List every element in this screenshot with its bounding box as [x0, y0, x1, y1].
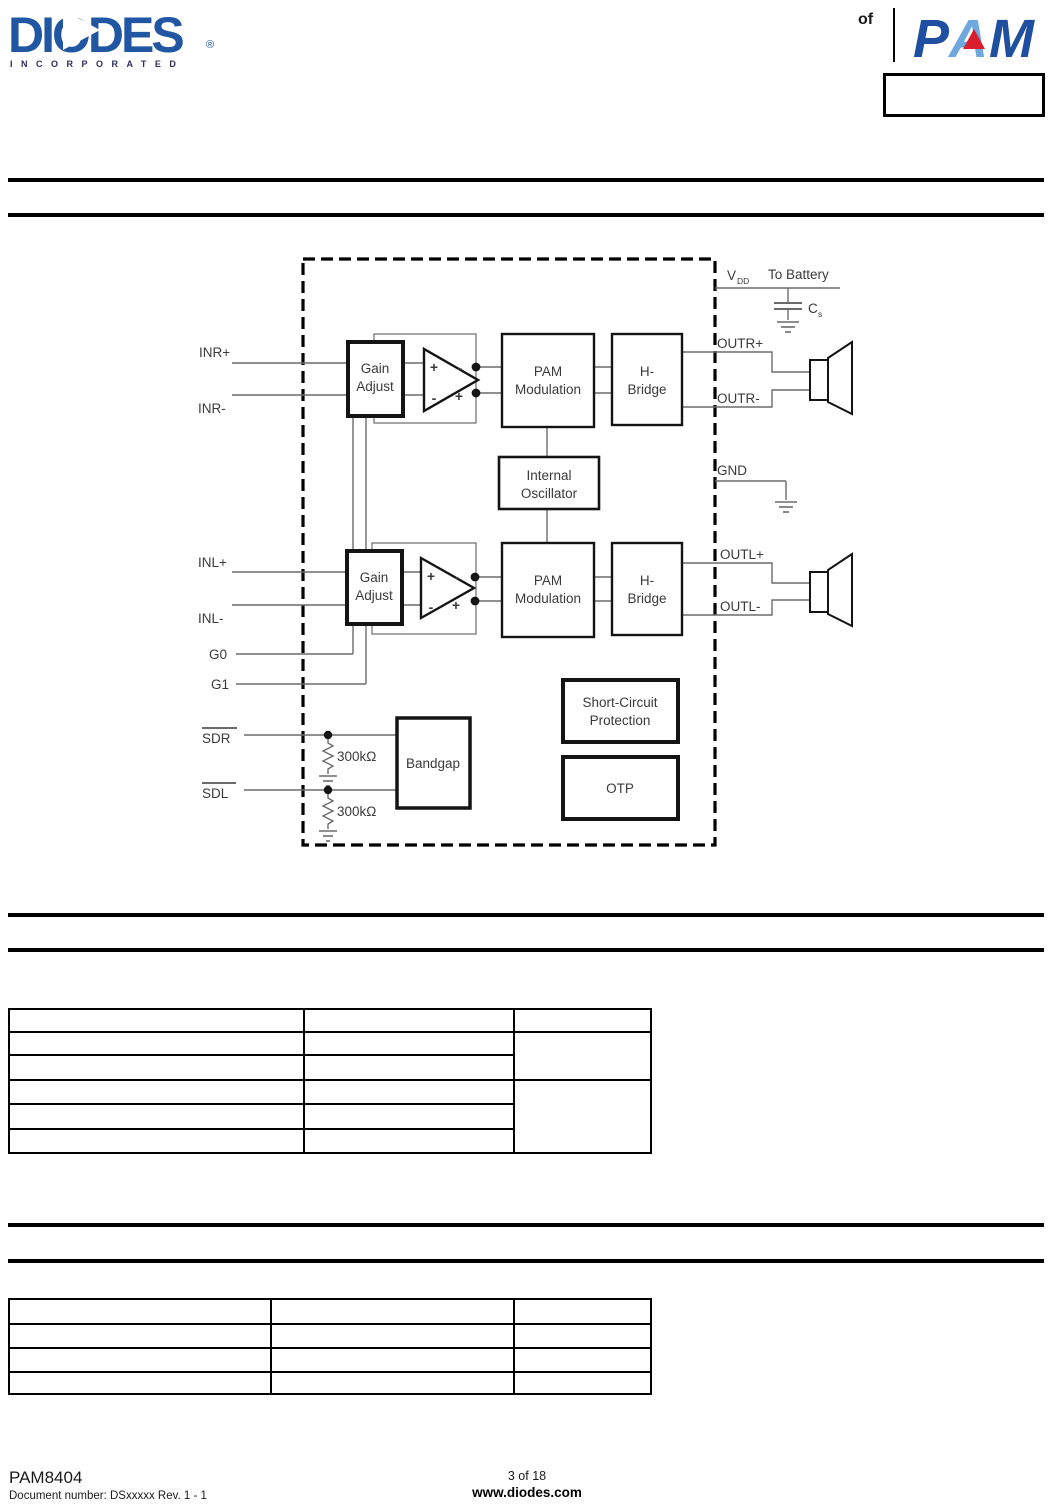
footer-website: www.diodes.com — [377, 1485, 677, 1500]
pin-sdr: SDR — [202, 731, 231, 746]
datasheet-page: DIODES ® INCORPORATED of P A M — [0, 0, 1052, 1505]
header-divider — [893, 8, 895, 62]
pin-inl-plus: INL+ — [198, 555, 227, 570]
pin-vdd: V — [727, 268, 736, 283]
h-bridge-left-block — [612, 543, 682, 635]
pin-g0: G0 — [209, 647, 227, 662]
cs-label: C — [808, 301, 818, 316]
h-bridge-left-line1: H- — [640, 573, 654, 588]
rule-5 — [8, 1223, 1044, 1227]
table-row — [9, 1348, 651, 1372]
table-row — [9, 1324, 651, 1348]
scp-line2: Protection — [590, 713, 651, 728]
diodes-logo-text: DIODES — [8, 7, 183, 63]
short-circuit-protection-block — [563, 680, 678, 742]
rule-4 — [8, 948, 1044, 952]
internal-oscillator-block — [499, 457, 599, 509]
gain-adjust-left-line2: Adjust — [355, 588, 393, 603]
opamp-right-in-plus: + — [430, 359, 438, 375]
opamp-left-out-plus: + — [452, 597, 460, 613]
rule-2 — [8, 213, 1044, 217]
pin-inr-plus: INR+ — [199, 345, 230, 360]
rule-1 — [8, 178, 1044, 182]
pin-outl-plus: OUTL+ — [720, 547, 764, 562]
pin-outl-minus: OUTL- — [720, 599, 761, 614]
table-row — [9, 1080, 651, 1104]
pam-modulation-right-block — [502, 334, 594, 427]
footer-page-indicator: 3 of 18 — [377, 1469, 677, 1483]
table1-merged-cell-b — [514, 1080, 651, 1153]
resistor-sdl — [323, 790, 333, 829]
rule-3 — [8, 913, 1044, 917]
pin-g1: G1 — [211, 677, 229, 692]
resistor-sdr-value: 300kΩ — [337, 749, 376, 764]
internal-oscillator-line2: Oscillator — [521, 486, 578, 501]
pam-modulation-right-line1: PAM — [534, 364, 562, 379]
footer-center: 3 of 18 www.diodes.com — [377, 1469, 677, 1500]
gain-adjust-right-line1: Gain — [361, 361, 390, 376]
pin-gnd: GND — [717, 463, 747, 478]
pam-letter-m: M — [989, 9, 1035, 65]
pam-letter-p: P — [913, 9, 950, 65]
table1-merged-cell-a — [514, 1032, 651, 1080]
internal-oscillator-line1: Internal — [526, 468, 571, 483]
to-battery-label: To Battery — [768, 267, 829, 282]
table1-header-col1 — [9, 1009, 304, 1032]
h-bridge-left-line2: Bridge — [627, 591, 666, 606]
h-bridge-right-line1: H- — [640, 364, 654, 379]
resistor-sdl-value: 300kΩ — [337, 804, 376, 819]
speaker-right-icon — [810, 360, 828, 400]
pin-inl-minus: INL- — [198, 611, 224, 626]
pam-modulation-left-line1: PAM — [534, 573, 562, 588]
block-diagram: INR+ INR- INL+ INL- G0 G1 SDR SDL OUTR+ … — [0, 250, 1052, 870]
scp-line1: Short-Circuit — [582, 695, 657, 710]
pam-modulation-left-line2: Modulation — [515, 591, 581, 606]
table1-header-col2 — [304, 1009, 514, 1032]
pam-letter-a: A — [947, 9, 988, 65]
bandgap-label: Bandgap — [406, 756, 460, 771]
table-2 — [8, 1298, 652, 1395]
pam-logo: P A M — [905, 5, 1050, 65]
otp-label: OTP — [606, 781, 634, 796]
h-bridge-right-block — [612, 334, 682, 425]
pin-outr-plus: OUTR+ — [717, 336, 763, 351]
opamp-right-in-minus: - — [432, 390, 437, 406]
pin-inr-minus: INR- — [198, 401, 226, 416]
footer-document-number: Document number: DSxxxxx Rev. 1 - 1 — [9, 1490, 207, 1502]
pin-sdl: SDL — [202, 786, 229, 801]
table-row — [9, 1299, 651, 1324]
table-1 — [8, 1008, 652, 1154]
table-row — [9, 1009, 651, 1032]
table-row — [9, 1032, 651, 1055]
opamp-right-out-minus: - — [458, 360, 463, 376]
rule-6 — [8, 1259, 1044, 1263]
gain-adjust-left-line1: Gain — [360, 570, 389, 585]
table1-header-col3 — [514, 1009, 651, 1032]
speaker-left-horn-icon — [828, 554, 852, 626]
header-empty-box — [883, 73, 1045, 117]
of-label: of — [858, 11, 873, 29]
opamp-left-out-minus: - — [455, 569, 460, 585]
gain-adjust-right-line2: Adjust — [356, 379, 394, 394]
opamp-left-in-minus: - — [429, 599, 434, 615]
diodes-incorporated-text: INCORPORATED — [10, 59, 184, 69]
h-bridge-right-line2: Bridge — [627, 382, 666, 397]
diodes-logo: DIODES ® INCORPORATED — [8, 4, 248, 72]
opamp-right-out-plus: + — [455, 388, 463, 404]
registered-mark: ® — [206, 39, 214, 51]
opamp-left-in-plus: + — [427, 568, 435, 584]
pin-vdd-subscript: DD — [737, 276, 749, 286]
pam-modulation-left-block — [502, 543, 594, 637]
speaker-right-horn-icon — [828, 342, 852, 414]
speaker-left-icon — [810, 572, 828, 612]
resistor-sdr — [323, 735, 333, 774]
cs-subscript: s — [818, 309, 822, 319]
table-row — [9, 1372, 651, 1394]
pin-outr-minus: OUTR- — [717, 391, 760, 406]
footer-part-number: PAM8404 — [9, 1468, 82, 1488]
pam-modulation-right-line2: Modulation — [515, 382, 581, 397]
